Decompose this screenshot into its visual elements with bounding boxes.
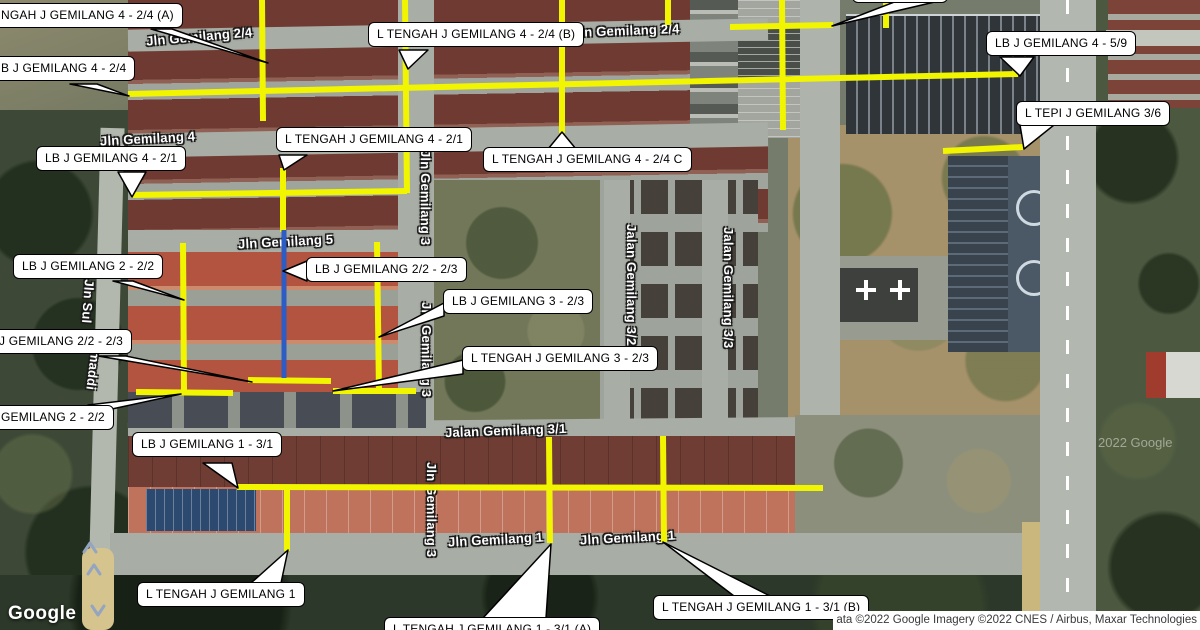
road-label-box[interactable]: LB J GEMILANG 4 - 2/1 (36, 146, 186, 171)
label-pointer (399, 50, 428, 69)
road-label-box[interactable]: L TEPI J GEMILANG 3/6 (1016, 101, 1170, 126)
road-label-box[interactable]: B J GEMILANG 4 - 2/4 (0, 56, 135, 81)
road-label-box[interactable]: L TENGAH J GEMILANG 4 - 2/4 (B) (368, 22, 584, 47)
road-label-box[interactable]: L TENGAH J GEMILANG 4 - 2/1 (276, 127, 472, 152)
label-pointer (832, 1, 939, 26)
road-label-box[interactable]: J GEMILANG 2/2 - 2/3 (0, 329, 132, 354)
road-label-box[interactable]: L TENGAH J GEMILANG 1 (137, 582, 305, 607)
label-pointer (279, 155, 307, 170)
road-label-box[interactable]: NGAH J GEMILANG 4 - 2/4 (A) (0, 3, 183, 28)
label-pointer (1000, 57, 1034, 76)
road-label-box[interactable]: L TENGAH J GEMILANG 4 - 2/4 C (483, 147, 692, 172)
road-label-box-partial[interactable] (852, 0, 948, 3)
label-pointer (98, 356, 252, 382)
label-pointer (283, 261, 307, 281)
label-pointer (663, 542, 770, 596)
road-label-box[interactable]: L TENGAH J GEMILANG 1 - 3/1 (A) (384, 617, 600, 630)
label-pointer (203, 463, 238, 488)
label-pointer (379, 303, 444, 337)
label-pointer (1020, 125, 1054, 149)
label-pointer (333, 360, 463, 391)
road-label-box[interactable]: LB J GEMILANG 2/2 - 2/3 (306, 257, 467, 282)
label-pointer (251, 550, 288, 583)
label-pointer (151, 29, 268, 63)
road-label-box[interactable]: LB J GEMILANG 2 - 2/2 (13, 254, 163, 279)
label-pointer (483, 544, 551, 618)
road-label-box[interactable]: L TENGAH J GEMILANG 3 - 2/3 (462, 346, 658, 371)
google-logo: Google (8, 603, 76, 625)
road-label-box[interactable]: LB J GEMILANG 3 - 2/3 (443, 289, 593, 314)
road-label-box[interactable]: LB J GEMILANG 1 - 3/1 (132, 432, 282, 457)
road-label-box[interactable]: GEMILANG 2 - 2/2 (0, 405, 114, 430)
label-pointer (70, 84, 129, 96)
map-attribution: ata ©2022 Google Imagery ©2022 CNES / Ai… (833, 611, 1200, 630)
label-pointer (118, 172, 146, 197)
label-pointer (113, 281, 184, 300)
label-pointers-layer (0, 0, 1200, 630)
map-canvas[interactable]: Jln Gemilang 2/4 Jln Gemilang 2/4 Jln Ge… (0, 0, 1200, 630)
road-label-box[interactable]: LB J GEMILANG 4 - 5/9 (986, 31, 1136, 56)
